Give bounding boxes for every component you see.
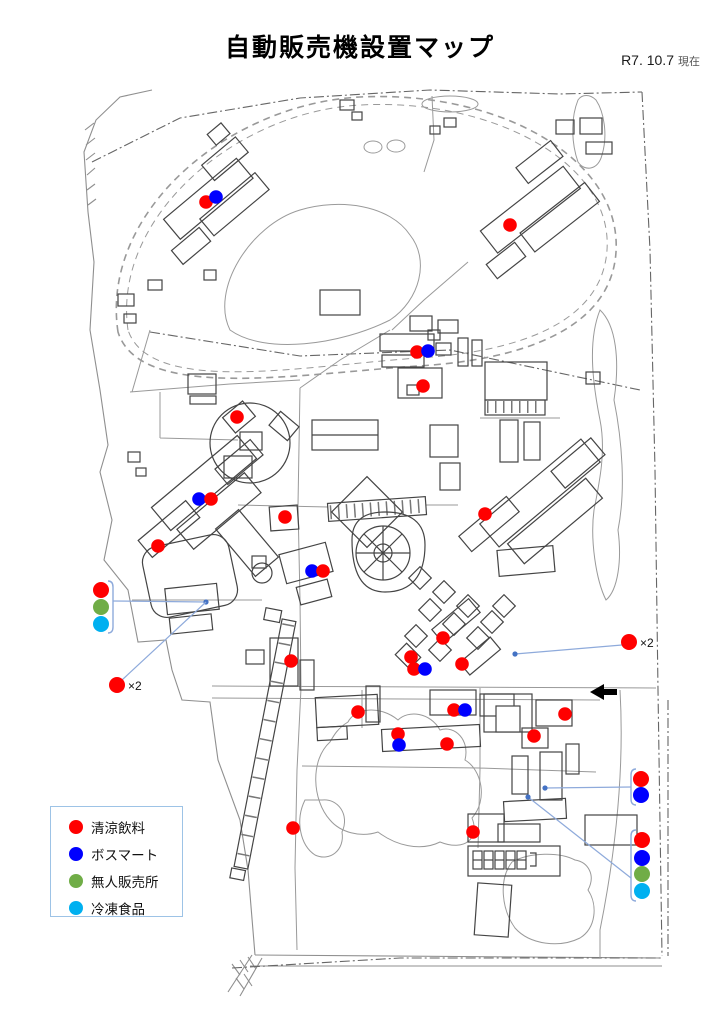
marker-soft-drink (416, 379, 430, 393)
entrance-arrow-layer (590, 684, 617, 700)
court-row (473, 851, 536, 869)
legend-item-label: ボスマート (91, 844, 158, 864)
legend-item-label: 冷凍食品 (91, 898, 145, 918)
callout-marker-soft-drink (93, 582, 109, 598)
marker-soft-drink (151, 539, 165, 553)
marker-soft-drink (478, 507, 492, 521)
marker-soft-drink (527, 729, 541, 743)
multiplier-label: ×2 (640, 636, 654, 650)
marker-soft-drink (286, 821, 300, 835)
legend-item-label: 清涼飲料 (91, 817, 145, 837)
callout-marker-soft-drink (634, 832, 650, 848)
callout-marker-soft-drink (633, 771, 649, 787)
callout-line (122, 602, 206, 680)
legend-box: 清涼飲料 ボスマート 無人販売所 冷凍食品 (50, 806, 183, 917)
callout-line (545, 787, 631, 788)
callout-marker-soft-drink (109, 677, 125, 693)
frozen-dot-icon (69, 901, 83, 915)
marker-soft-drink (284, 654, 298, 668)
marker-bosmart (209, 190, 223, 204)
callout-marker-frozen (93, 616, 109, 632)
legend-item-bosmart: ボスマート (69, 842, 182, 866)
marker-soft-drink (278, 510, 292, 524)
marker-bosmart (192, 492, 206, 506)
marker-bosmart (421, 344, 435, 358)
bosmart-dot-icon (69, 847, 83, 861)
marker-bosmart (392, 738, 406, 752)
marker-soft-drink (436, 631, 450, 645)
legend-item-soft-drink: 清涼飲料 (69, 815, 182, 839)
callout-line (113, 601, 206, 602)
marker-soft-drink (503, 218, 517, 232)
ring-road (116, 97, 616, 379)
callout-marker-soft-drink (621, 634, 637, 650)
unmanned-dot-icon (69, 874, 83, 888)
callout-marker-frozen (634, 883, 650, 899)
callout-line (515, 645, 622, 654)
legend-item-label: 無人販売所 (91, 871, 159, 891)
callout-marker-bosmart (634, 850, 650, 866)
multiplier-label: ×2 (128, 679, 142, 693)
marker-soft-drink (466, 825, 480, 839)
buildings (118, 100, 637, 937)
marker-soft-drink (351, 705, 365, 719)
left-arrow-icon (590, 684, 617, 700)
vending-map-page: 自動販売機設置マップ R7. 10.7現在 (0, 0, 720, 1018)
marker-soft-drink (440, 737, 454, 751)
marker-bosmart (418, 662, 432, 676)
callout-marker-unmanned (93, 599, 109, 615)
roads (130, 96, 656, 958)
marker-soft-drink (455, 657, 469, 671)
marker-layer (151, 190, 572, 839)
callout-marker-bosmart (633, 787, 649, 803)
soft-drink-dot-icon (69, 820, 83, 834)
callout-marker-unmanned (634, 866, 650, 882)
callout-anchor-dot (512, 651, 517, 656)
marker-soft-drink (316, 564, 330, 578)
marker-soft-drink (558, 707, 572, 721)
callout-anchor-dot (525, 794, 530, 799)
callout-line (528, 797, 631, 878)
marker-soft-drink (230, 410, 244, 424)
marker-soft-drink (204, 492, 218, 506)
marker-soft-drink (404, 650, 418, 664)
legend-item-frozen: 冷凍食品 (69, 896, 182, 920)
legend-item-unmanned: 無人販売所 (69, 869, 182, 893)
marker-bosmart (458, 703, 472, 717)
callout-anchor-dot (542, 785, 547, 790)
